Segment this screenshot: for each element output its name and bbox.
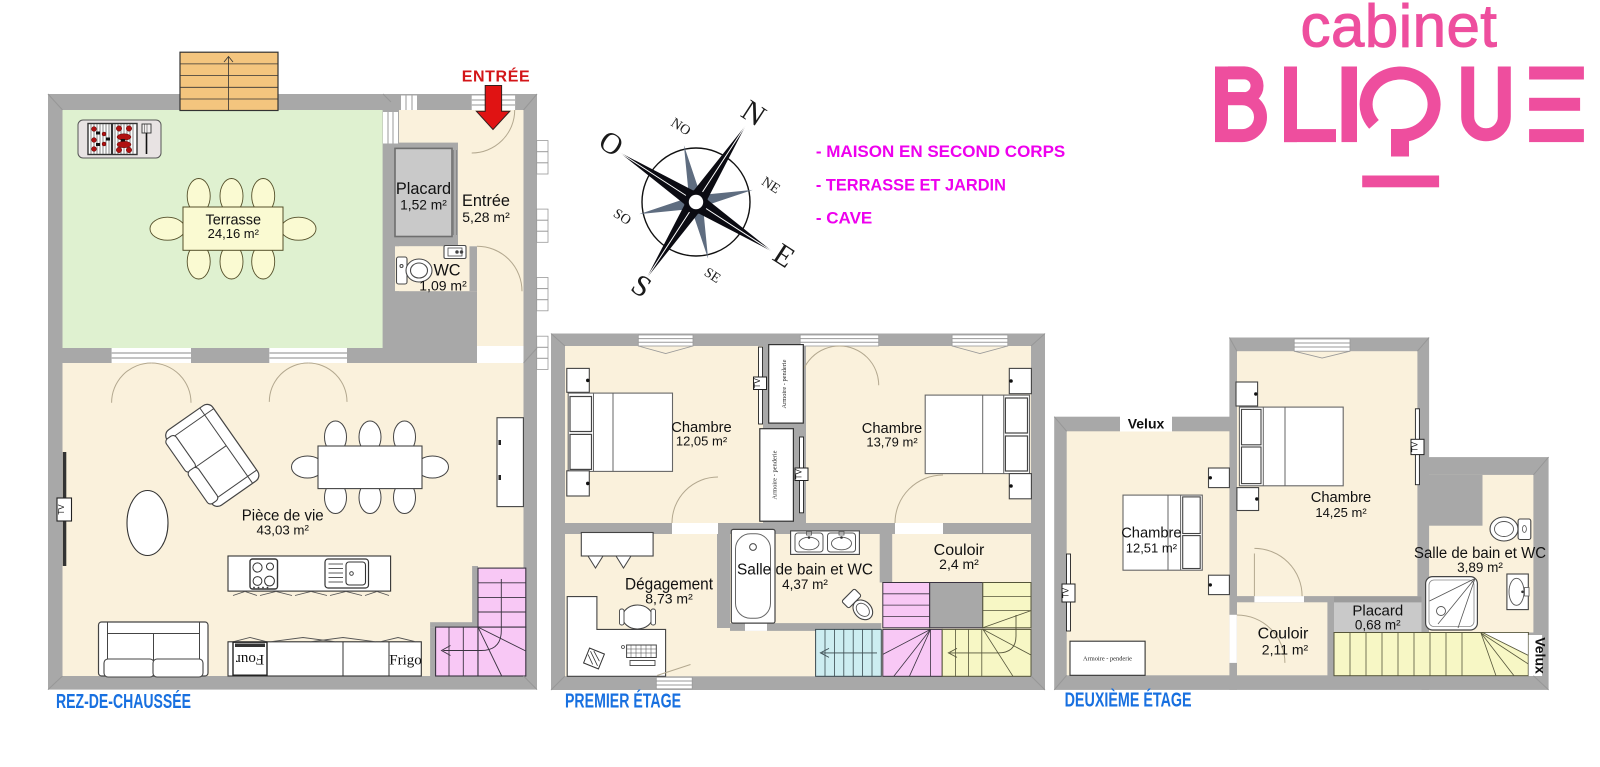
svg-text:DEUXIÈME ÉTAGE: DEUXIÈME ÉTAGE — [1065, 689, 1192, 712]
svg-text:2,4 m²: 2,4 m² — [939, 556, 979, 572]
svg-text:- CAVE: - CAVE — [816, 209, 872, 228]
svg-text:1,09 m²: 1,09 m² — [419, 278, 467, 294]
svg-text:Placard: Placard — [396, 180, 451, 198]
svg-text:ENTRÉE: ENTRÉE — [462, 66, 531, 85]
svg-text:- MAISON EN SECOND CORPS: - MAISON EN SECOND CORPS — [816, 142, 1065, 161]
svg-text:Four: Four — [236, 651, 264, 667]
svg-text:5,28 m²: 5,28 m² — [462, 209, 510, 225]
svg-text:PREMIER ÉTAGE: PREMIER ÉTAGE — [565, 690, 681, 713]
svg-text:13,79 m²: 13,79 m² — [866, 435, 918, 450]
svg-text:24,16 m²: 24,16 m² — [208, 226, 260, 241]
svg-text:TV: TV — [753, 377, 762, 388]
svg-text:4,37 m²: 4,37 m² — [782, 577, 828, 592]
svg-text:Entrée: Entrée — [462, 192, 510, 210]
svg-text:1,52 m²: 1,52 m² — [400, 198, 447, 213]
svg-text:Armoire - penderie: Armoire - penderie — [772, 450, 779, 499]
svg-text:Velux: Velux — [1128, 416, 1165, 432]
svg-text:TV: TV — [795, 468, 804, 479]
svg-text:12,05 m²: 12,05 m² — [676, 433, 728, 448]
svg-text:Armoire - penderie: Armoire - penderie — [1083, 656, 1132, 663]
svg-text:Couloir: Couloir — [1258, 626, 1309, 643]
svg-text:TV: TV — [1411, 441, 1420, 452]
svg-text:Frigo: Frigo — [389, 653, 422, 669]
svg-text:TV: TV — [57, 504, 66, 515]
svg-text:12,51 m²: 12,51 m² — [1126, 540, 1178, 555]
svg-text:Chambre: Chambre — [1311, 490, 1371, 506]
svg-text:Armoire - penderie: Armoire - penderie — [781, 359, 788, 408]
svg-text:REZ-DE-CHAUSSÉE: REZ-DE-CHAUSSÉE — [56, 690, 191, 713]
svg-text:8,73 m²: 8,73 m² — [645, 590, 693, 606]
svg-text:14,25 m²: 14,25 m² — [1315, 505, 1367, 520]
svg-text:Velux: Velux — [1532, 637, 1548, 674]
svg-text:- TERRASSE ET JARDIN: - TERRASSE ET JARDIN — [816, 176, 1006, 195]
svg-text:Chambre: Chambre — [1121, 526, 1181, 542]
svg-text:2,11 m²: 2,11 m² — [1262, 642, 1309, 658]
svg-text:43,03 m²: 43,03 m² — [256, 522, 309, 537]
svg-text:0,68 m²: 0,68 m² — [1355, 618, 1401, 633]
svg-text:3,89 m²: 3,89 m² — [1457, 560, 1503, 575]
svg-text:TV: TV — [1062, 587, 1071, 598]
svg-text:cabinet: cabinet — [1301, 0, 1498, 60]
